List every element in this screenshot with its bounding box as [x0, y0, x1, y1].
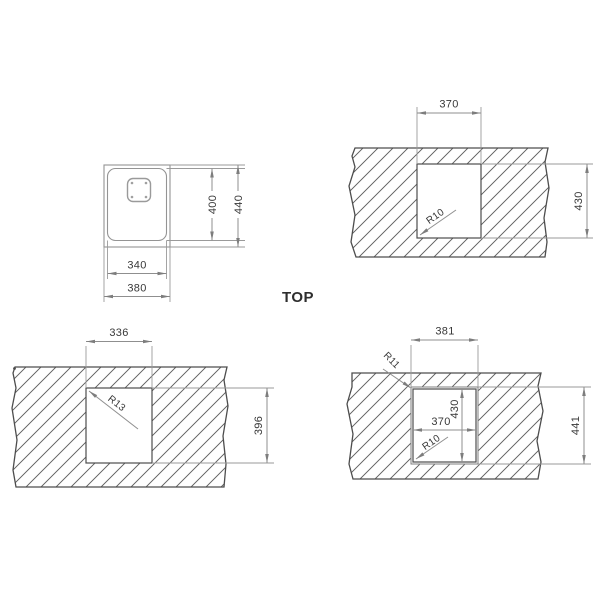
- arrowhead: [104, 295, 113, 299]
- arrowhead: [582, 455, 586, 464]
- arrowhead: [210, 232, 214, 241]
- arrowhead: [108, 272, 117, 276]
- drain-corner-dot: [145, 196, 148, 199]
- panel-cutout-bottom-right: 381 441 430 370 R11 R10: [347, 326, 591, 480]
- technical-drawing-sheet: 400 440 340 380: [0, 0, 600, 600]
- edge-corner-dot: [13, 367, 16, 370]
- panel-cutout-top-right: 370 430 R10: [349, 99, 593, 258]
- dim-label-cutout-height: 430: [573, 191, 585, 210]
- dim-label-flange-width: 380: [127, 283, 146, 295]
- dim-label-cutout-width: 336: [109, 327, 128, 339]
- arrowhead: [472, 111, 481, 115]
- arrowhead: [143, 340, 152, 344]
- drain-square: [128, 179, 151, 202]
- top-view-label: TOP: [282, 289, 314, 306]
- arrowhead: [161, 295, 170, 299]
- arrowhead: [265, 454, 269, 463]
- arrowhead: [265, 388, 269, 397]
- drain-corner-dot: [131, 182, 134, 185]
- radius-label: R11: [381, 350, 402, 371]
- arrowhead: [86, 340, 95, 344]
- dim-label-flange-height: 440: [233, 195, 245, 214]
- drawing-overlay: 400 440 340 380: [0, 0, 600, 600]
- dim-label-flange-height: 441: [570, 416, 582, 435]
- panel-cutout-bottom-left: 336 396 R13: [12, 327, 274, 487]
- panel-sink-outline: 400 440 340 380: [104, 165, 245, 302]
- dim-label-cutout-width: 370: [431, 416, 450, 428]
- dim-label-bowl-width: 340: [127, 260, 146, 272]
- dim-label-cutout-height: 396: [253, 416, 265, 435]
- drain-corner-dot: [131, 196, 134, 199]
- arrowhead: [158, 272, 167, 276]
- drain-corner-dot: [145, 182, 148, 185]
- arrowhead: [236, 165, 240, 174]
- arrowhead: [411, 338, 420, 342]
- dim-label-flange-width: 381: [435, 326, 454, 338]
- arrowhead: [210, 169, 214, 178]
- arrowhead: [417, 111, 426, 115]
- arrowhead: [403, 382, 411, 389]
- arrowhead: [582, 387, 586, 396]
- arrowhead: [585, 164, 589, 173]
- arrowhead: [469, 338, 478, 342]
- dim-label-cutout-width: 370: [439, 99, 458, 111]
- cutout-rect: [417, 164, 481, 238]
- dim-label-bowl-height: 400: [207, 195, 219, 214]
- dim-label-cutout-height: 430: [449, 399, 461, 418]
- arrowhead: [236, 238, 240, 247]
- arrowhead: [585, 229, 589, 238]
